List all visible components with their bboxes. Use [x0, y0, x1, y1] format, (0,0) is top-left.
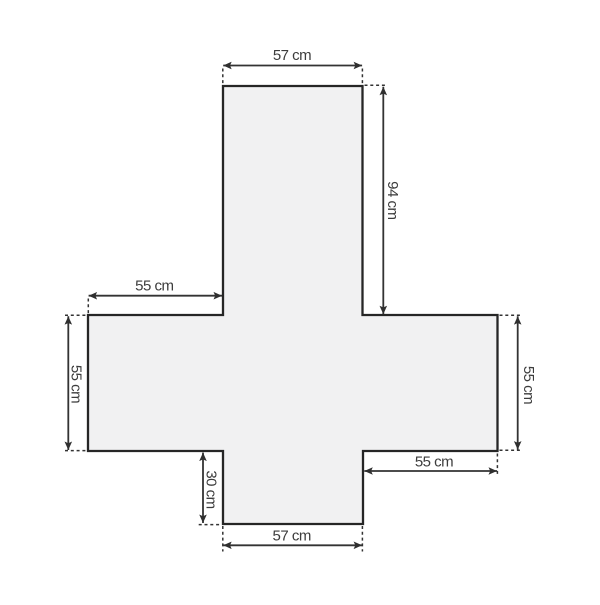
svg-text:55 cm: 55 cm [520, 366, 537, 404]
svg-text:94 cm: 94 cm [384, 181, 401, 219]
svg-text:55 cm: 55 cm [68, 365, 85, 403]
svg-text:57 cm: 57 cm [273, 528, 311, 545]
svg-text:55 cm: 55 cm [415, 454, 453, 471]
svg-text:30 cm: 30 cm [203, 470, 220, 508]
svg-text:57 cm: 57 cm [273, 47, 311, 64]
svg-text:55 cm: 55 cm [135, 277, 173, 294]
